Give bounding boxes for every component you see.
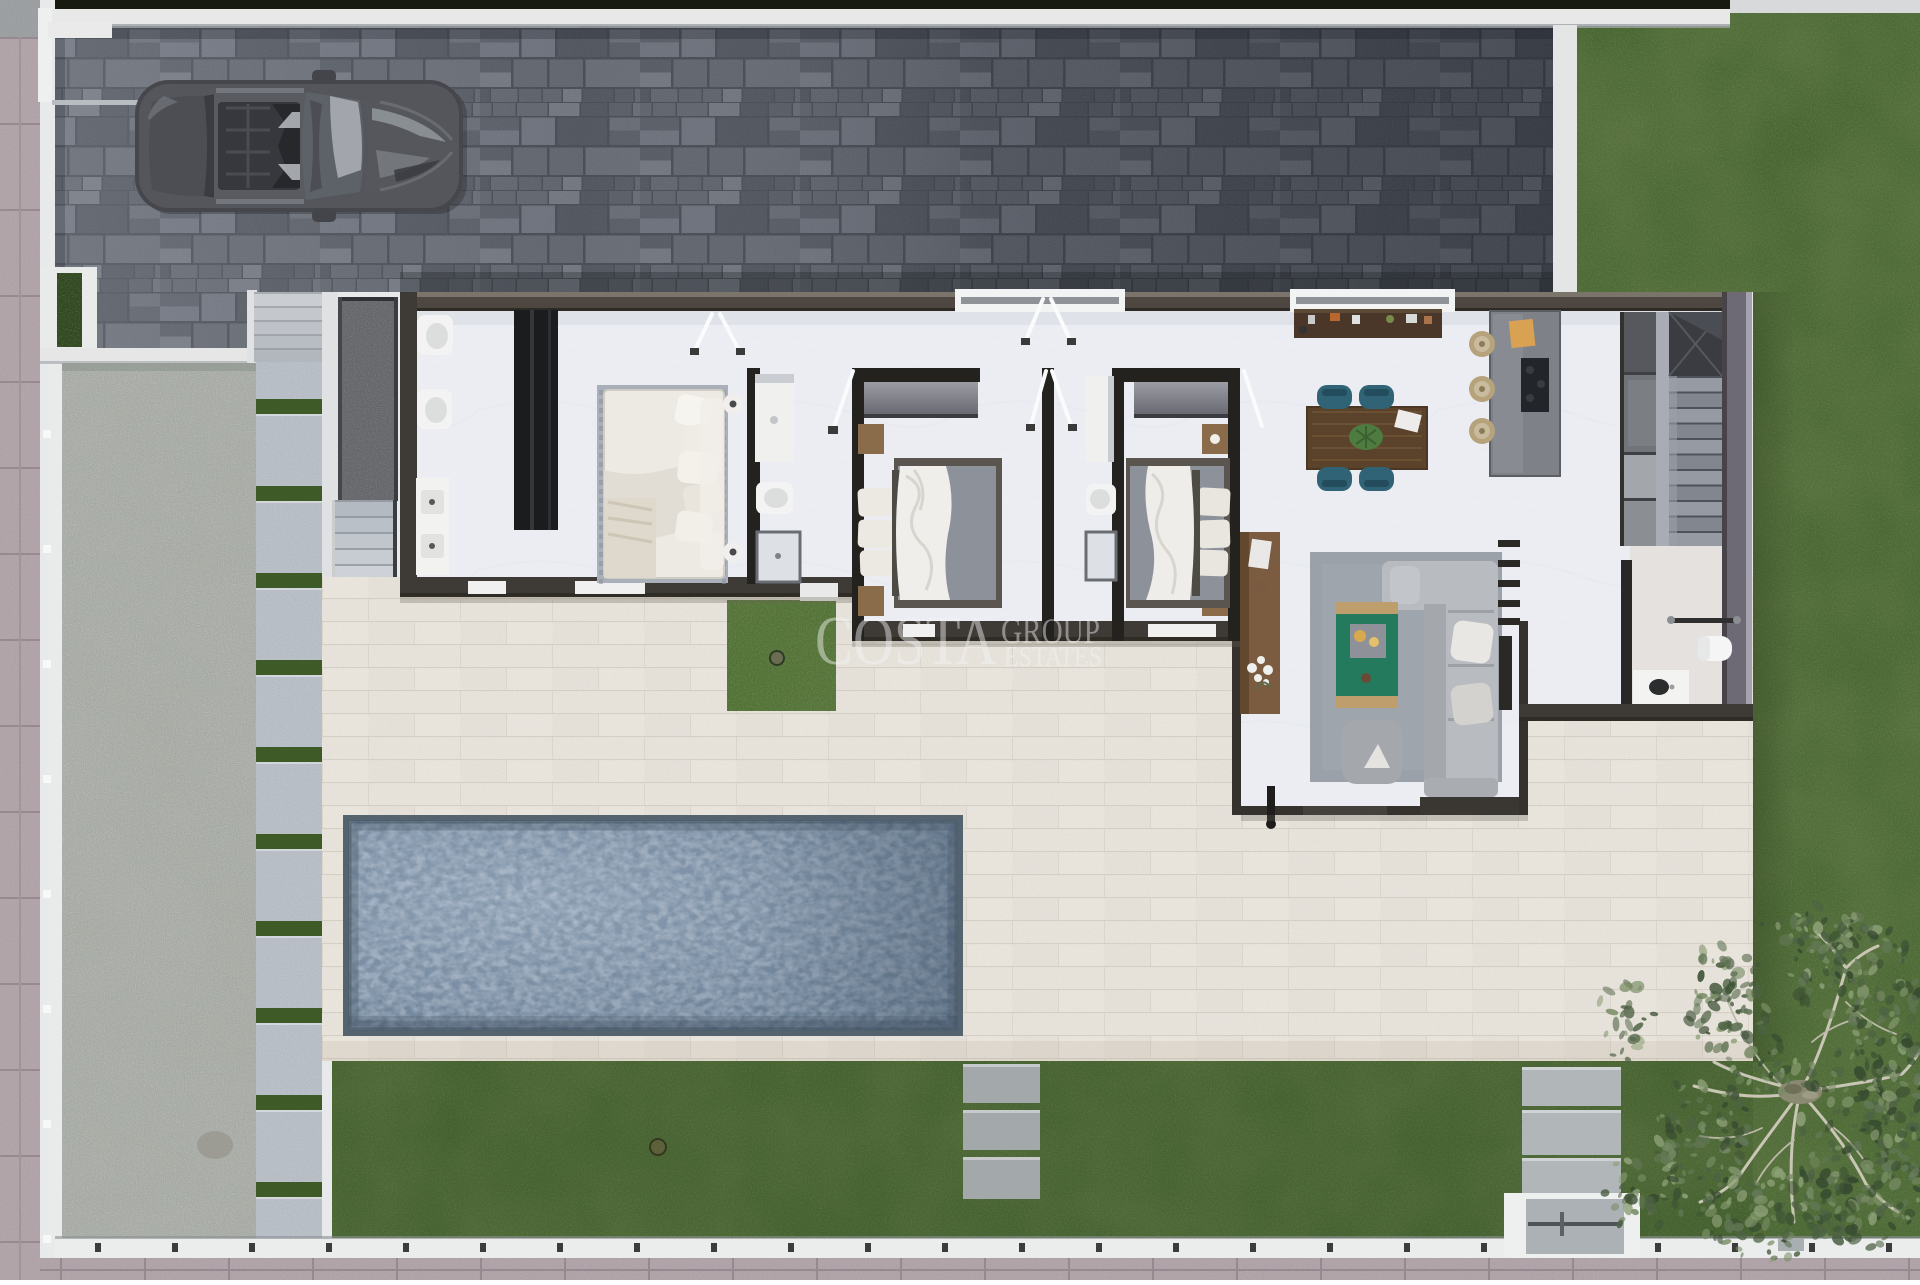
svg-text:COSTA: COSTA: [815, 603, 997, 680]
svg-text:ESTATES: ESTATES: [1004, 641, 1102, 673]
